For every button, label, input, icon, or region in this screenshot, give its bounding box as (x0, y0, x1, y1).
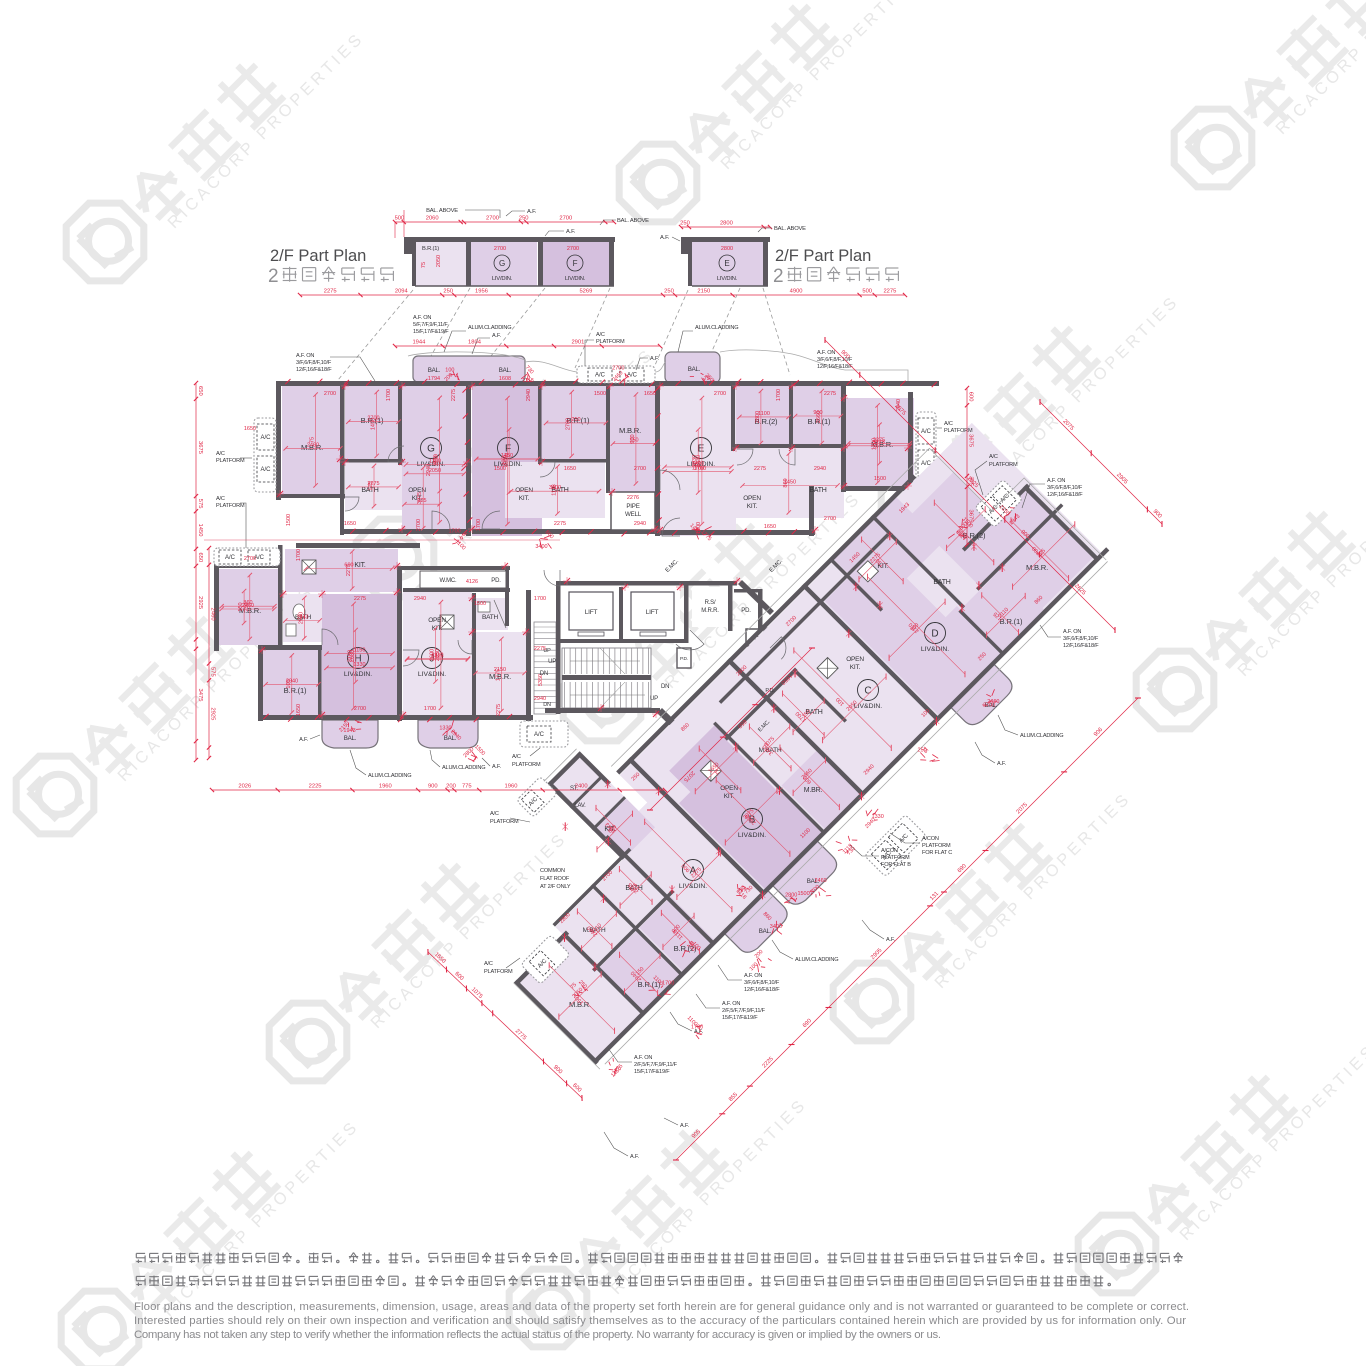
svg-text:1960: 1960 (505, 784, 518, 790)
svg-text:75: 75 (421, 262, 427, 268)
svg-text:A/C: A/C (490, 811, 499, 817)
svg-text:PLATFORM: PLATFORM (512, 762, 541, 768)
svg-text:2700: 2700 (354, 706, 366, 712)
svg-text:BATH: BATH (482, 614, 499, 621)
svg-text:COMMON: COMMON (540, 868, 565, 874)
svg-text:DN: DN (661, 684, 669, 690)
svg-text:1650: 1650 (764, 524, 776, 530)
svg-text:2700: 2700 (612, 366, 624, 372)
svg-text:PLATFORM: PLATFORM (944, 428, 973, 434)
svg-text:1650: 1650 (564, 466, 576, 472)
svg-text:A/C: A/C (595, 373, 606, 379)
svg-text:375: 375 (874, 439, 880, 448)
svg-text:2275: 2275 (496, 704, 502, 716)
svg-text:PLATFORM: PLATFORM (922, 843, 951, 849)
svg-text:1118: 1118 (522, 378, 533, 384)
svg-text:2925: 2925 (210, 707, 216, 720)
svg-text:1960: 1960 (379, 784, 392, 790)
svg-text:2050: 2050 (436, 255, 442, 267)
svg-text:125: 125 (368, 481, 374, 490)
svg-text:2940: 2940 (896, 399, 902, 411)
svg-text:3/F,6/F,8/F,10/F: 3/F,6/F,8/F,10/F (1047, 485, 1083, 491)
svg-text:E: E (698, 444, 705, 455)
svg-text:2275: 2275 (883, 289, 896, 295)
svg-text:100: 100 (445, 367, 454, 373)
svg-text:A.F. ON: A.F. ON (296, 353, 314, 359)
svg-text:2: 2 (268, 266, 279, 287)
svg-text:1650: 1650 (296, 704, 302, 716)
svg-text:2225: 2225 (309, 784, 322, 790)
svg-text:Interested parties should rely: Interested parties should rely on their … (134, 1315, 1186, 1327)
svg-text:5269: 5269 (579, 289, 592, 295)
svg-text:2026: 2026 (238, 784, 251, 790)
svg-text:900: 900 (428, 784, 438, 790)
svg-text:1650: 1650 (244, 426, 256, 432)
svg-text:1700: 1700 (694, 466, 706, 472)
svg-text:A.F.: A.F. (492, 333, 501, 339)
svg-text:500: 500 (395, 216, 405, 222)
svg-text:OPEN: OPEN (428, 617, 446, 624)
svg-text:A.F. ON: A.F. ON (413, 315, 431, 321)
svg-text:1943: 1943 (343, 728, 355, 734)
svg-text:15/F,17/F&19/F: 15/F,17/F&19/F (413, 329, 449, 335)
svg-text:BAL.: BAL. (499, 367, 512, 374)
svg-text:2660: 2660 (816, 411, 822, 423)
svg-text:A/C: A/C (512, 754, 521, 760)
svg-text:BAL.: BAL. (688, 366, 701, 373)
svg-text:A.F. ON: A.F. ON (744, 973, 762, 979)
svg-text:A.F.: A.F. (630, 1154, 639, 1160)
svg-text:A/C: A/C (225, 555, 236, 561)
svg-text:P.D.: P.D. (680, 656, 688, 662)
svg-text:250: 250 (680, 221, 690, 227)
svg-text:LIV&DIN.: LIV&DIN. (738, 832, 766, 839)
svg-text:150: 150 (238, 602, 244, 611)
svg-text:4126: 4126 (466, 579, 478, 585)
svg-text:2700: 2700 (566, 418, 572, 430)
svg-text:12/F,16/F&18/F: 12/F,16/F&18/F (817, 364, 853, 370)
svg-text:2/F Part Plan: 2/F Part Plan (270, 247, 366, 265)
svg-text:2800: 2800 (785, 893, 797, 899)
svg-text:A/C: A/C (260, 435, 271, 441)
svg-text:A/C: A/C (484, 961, 493, 967)
svg-text:2700: 2700 (416, 519, 422, 531)
svg-text:650: 650 (197, 553, 203, 563)
svg-text:FLAT ROOF: FLAT ROOF (540, 876, 570, 882)
svg-text:ALUM.CLADDING: ALUM.CLADDING (695, 325, 738, 331)
svg-text:A/CON: A/CON (922, 836, 939, 842)
svg-text:1700: 1700 (424, 706, 436, 712)
svg-text:1700: 1700 (476, 519, 482, 531)
svg-text:A.F. ON: A.F. ON (817, 350, 835, 356)
svg-text:BAL. ABOVE: BAL. ABOVE (617, 218, 649, 224)
svg-text:M.R.R.: M.R.R. (701, 608, 719, 614)
svg-text:PLATFORM: PLATFORM (484, 969, 513, 975)
svg-text:15/F,17/F&19/F: 15/F,17/F&19/F (634, 1069, 670, 1075)
svg-text:A/C: A/C (216, 451, 225, 457)
svg-text:1794: 1794 (428, 376, 440, 382)
svg-text:PLATFORM: PLATFORM (881, 855, 910, 861)
svg-text:3/F,6/F,8/F,10/F: 3/F,6/F,8/F,10/F (296, 360, 332, 366)
svg-text:A.F.: A.F. (527, 209, 537, 215)
svg-text:A/C: A/C (216, 496, 225, 502)
svg-text:D: D (931, 629, 938, 640)
svg-text:100: 100 (286, 679, 292, 688)
svg-text:250: 250 (443, 289, 453, 295)
svg-text:2901: 2901 (571, 340, 584, 346)
svg-text:250: 250 (571, 417, 580, 423)
svg-text:PLATFORM: PLATFORM (490, 819, 519, 825)
svg-text:75: 75 (310, 437, 316, 443)
svg-text:M.B.R.: M.B.R. (1026, 563, 1048, 572)
svg-text:12/F,16/F&18/F: 12/F,16/F&18/F (744, 987, 780, 993)
svg-text:A.F.: A.F. (660, 235, 670, 241)
svg-text:2940: 2940 (298, 612, 304, 624)
svg-text:2940: 2940 (814, 466, 826, 472)
svg-text:2700: 2700 (324, 391, 336, 397)
svg-text:A.F.: A.F. (566, 229, 576, 235)
svg-text:3/F,6/F,8/F,10/F: 3/F,6/F,8/F,10/F (744, 980, 780, 986)
svg-text:A.F. ON: A.F. ON (634, 1055, 652, 1061)
svg-text:ALUM.CLADDING: ALUM.CLADDING (468, 325, 511, 331)
svg-text:2400: 2400 (575, 784, 588, 790)
svg-text:PLATFORM: PLATFORM (989, 462, 1018, 468)
svg-text:BAL.: BAL. (344, 735, 357, 742)
svg-text:2/F,5/F,7/F,9/F,11/F: 2/F,5/F,7/F,9/F,11/F (634, 1062, 678, 1068)
svg-text:A.F.: A.F. (997, 761, 1006, 767)
svg-text:G: G (499, 259, 505, 268)
svg-text:250: 250 (519, 216, 529, 222)
svg-text:LIV&DIN.: LIV&DIN. (418, 671, 446, 678)
svg-text:1804: 1804 (468, 340, 482, 346)
svg-text:600: 600 (968, 392, 974, 402)
svg-text:W.MC.: W.MC. (440, 578, 458, 584)
svg-text:M.B.R.: M.B.R. (619, 426, 641, 435)
svg-text:UP: UP (650, 696, 658, 702)
svg-text:1700: 1700 (386, 389, 392, 401)
svg-text:E: E (724, 259, 729, 268)
svg-text:2700: 2700 (983, 702, 995, 708)
svg-text:LIV&DIN.: LIV&DIN. (679, 883, 707, 890)
svg-text:2/F,5/F,7/F,9/F,11/F: 2/F,5/F,7/F,9/F,11/F (722, 1008, 766, 1014)
svg-text:A/CON: A/CON (881, 848, 898, 854)
svg-text:1700: 1700 (534, 596, 546, 602)
svg-text:1608: 1608 (499, 376, 511, 382)
svg-text:A/C: A/C (260, 467, 271, 473)
svg-text:1500: 1500 (594, 391, 606, 397)
svg-text:1500: 1500 (474, 601, 486, 607)
svg-text:PD.: PD. (491, 578, 501, 584)
svg-text:A.F. ON: A.F. ON (1063, 629, 1081, 635)
svg-text:1500: 1500 (494, 466, 506, 472)
svg-text:BAL.: BAL. (428, 367, 441, 374)
svg-text:1118: 1118 (552, 484, 558, 495)
svg-text:3475: 3475 (197, 689, 203, 702)
svg-text:2276: 2276 (627, 495, 639, 501)
svg-text:12/F,16/F&18/F: 12/F,16/F&18/F (1047, 492, 1083, 498)
svg-text:LIV&DIN.: LIV&DIN. (921, 646, 949, 653)
svg-text:650: 650 (197, 386, 203, 396)
svg-text:ALUM.CLADDING: ALUM.CLADDING (1020, 733, 1063, 739)
svg-text:A.F.: A.F. (492, 764, 501, 770)
svg-text:2940: 2940 (414, 596, 426, 602)
svg-text:BAL. ABOVE: BAL. ABOVE (426, 208, 458, 214)
svg-text:500: 500 (862, 289, 872, 295)
svg-text:2150: 2150 (697, 289, 710, 295)
svg-text:A.F.: A.F. (299, 737, 308, 743)
svg-text:3/F,6/F,8/F,10/F: 3/F,6/F,8/F,10/F (1063, 636, 1099, 642)
svg-text:G: G (427, 444, 435, 455)
svg-text:1700: 1700 (448, 528, 460, 534)
svg-text:2/F Part Plan: 2/F Part Plan (775, 247, 871, 265)
svg-text:2460: 2460 (210, 608, 216, 621)
svg-text:2600: 2600 (430, 649, 436, 661)
svg-text:ALUM.CLADDING: ALUM.CLADDING (795, 957, 838, 963)
svg-text:3675: 3675 (968, 434, 974, 447)
svg-text:2940: 2940 (634, 521, 646, 527)
svg-text:PD.: PD. (741, 608, 751, 614)
svg-text:2460: 2460 (815, 878, 827, 884)
svg-text:3075: 3075 (417, 492, 423, 504)
svg-text:1500: 1500 (874, 476, 886, 482)
svg-text:OPEN: OPEN (743, 495, 761, 502)
svg-text:ALUM.CLADDING: ALUM.CLADDING (368, 773, 411, 779)
svg-text:LIFT: LIFT (646, 609, 659, 616)
svg-text:2275: 2275 (534, 646, 546, 652)
svg-text:2275: 2275 (346, 564, 352, 576)
svg-text:200: 200 (446, 784, 456, 790)
svg-text:A/C: A/C (627, 373, 638, 379)
svg-text:LIFT: LIFT (585, 609, 598, 616)
svg-text:250: 250 (918, 748, 927, 754)
svg-text:3400: 3400 (535, 544, 547, 550)
svg-text:KIT.: KIT. (747, 503, 758, 510)
svg-text:WELL: WELL (625, 511, 642, 518)
svg-text:12/F,16/F&18/F: 12/F,16/F&18/F (296, 367, 332, 373)
svg-text:DN: DN (540, 671, 548, 677)
svg-text:KIT.: KIT. (354, 562, 366, 569)
svg-text:12/F,16/F&18/F: 12/F,16/F&18/F (1063, 643, 1099, 649)
svg-text:1775: 1775 (495, 669, 501, 681)
svg-text:2940: 2940 (426, 464, 432, 476)
svg-text:2700: 2700 (559, 216, 572, 222)
svg-text:A.F.: A.F. (680, 1123, 689, 1129)
svg-text:PLATFORM: PLATFORM (216, 458, 245, 464)
svg-text:575: 575 (197, 499, 203, 509)
svg-text:FOR FLAT B: FOR FLAT B (881, 862, 911, 868)
svg-text:BAL. ABOVE: BAL. ABOVE (774, 226, 806, 232)
svg-text:1330: 1330 (439, 725, 451, 731)
svg-text:3675: 3675 (197, 441, 203, 454)
svg-text:250: 250 (664, 289, 674, 295)
svg-text:775: 775 (462, 784, 472, 790)
svg-text:2275: 2275 (451, 389, 457, 401)
svg-text:2700: 2700 (714, 391, 726, 397)
svg-text:A.F. ON: A.F. ON (1047, 478, 1065, 484)
svg-text:1500: 1500 (286, 514, 292, 526)
svg-text:2700: 2700 (494, 246, 506, 252)
svg-text:15/F,17/F&19/F: 15/F,17/F&19/F (722, 1015, 758, 1021)
svg-text:2275: 2275 (354, 596, 366, 602)
svg-text:2800: 2800 (755, 411, 761, 423)
svg-text:3400: 3400 (770, 924, 782, 930)
svg-text:LIV/DIN.: LIV/DIN. (492, 276, 513, 282)
svg-text:2680: 2680 (350, 650, 356, 662)
svg-text:2700: 2700 (824, 516, 836, 522)
svg-text:2800: 2800 (721, 246, 733, 252)
svg-text:OPEN: OPEN (515, 487, 533, 494)
svg-text:Floor plans and the descriptio: Floor plans and the description, measure… (134, 1301, 1189, 1313)
svg-text:2060: 2060 (426, 216, 439, 222)
svg-text:A/C: A/C (596, 332, 605, 338)
svg-text:1944: 1944 (412, 340, 426, 346)
svg-text:2700: 2700 (244, 556, 256, 562)
svg-text:2275: 2275 (324, 289, 337, 295)
svg-text:A/C: A/C (534, 732, 545, 738)
svg-text:LIV/DIN.: LIV/DIN. (565, 276, 586, 282)
svg-text:M.BR.: M.BR. (804, 787, 823, 794)
svg-text:1650: 1650 (344, 521, 356, 527)
svg-text:Company has not taken any step: Company has not taken any step to verify… (134, 1329, 941, 1341)
svg-text:B.R.(1): B.R.(1) (422, 246, 439, 252)
svg-text:1700: 1700 (296, 549, 302, 561)
svg-text:A/C: A/C (921, 429, 932, 435)
svg-text:FOR FLAT C: FOR FLAT C (922, 850, 952, 856)
svg-text:1700: 1700 (776, 389, 782, 401)
svg-text:575: 575 (210, 667, 216, 677)
svg-text:F: F (573, 259, 578, 268)
svg-text:A/C: A/C (989, 454, 998, 460)
svg-text:2925: 2925 (197, 596, 203, 609)
svg-text:OPEN: OPEN (720, 785, 738, 792)
svg-text:2094: 2094 (395, 289, 409, 295)
svg-text:2800: 2800 (720, 221, 733, 227)
svg-text:2: 2 (773, 266, 784, 287)
svg-text:900: 900 (434, 455, 440, 464)
svg-text:2275: 2275 (824, 391, 836, 397)
svg-text:DN: DN (543, 702, 551, 708)
svg-text:5/F,7/F,9/F,11/F: 5/F,7/F,9/F,11/F (413, 322, 448, 328)
svg-text:A.F. ON: A.F. ON (722, 1001, 740, 1007)
svg-text:LIV&DIN.: LIV&DIN. (344, 671, 372, 678)
svg-text:R.S/: R.S/ (705, 600, 716, 606)
svg-text:2700: 2700 (486, 216, 499, 222)
svg-text:2940: 2940 (526, 389, 532, 401)
svg-text:AT 2/F ONLY: AT 2/F ONLY (540, 884, 571, 890)
svg-text:2940: 2940 (534, 696, 546, 702)
svg-text:UP: UP (548, 659, 556, 665)
svg-text:2275: 2275 (754, 466, 766, 472)
svg-text:A/C: A/C (944, 421, 953, 427)
svg-text:LIV/DIN.: LIV/DIN. (717, 276, 738, 282)
svg-text:PLATFORM: PLATFORM (216, 503, 245, 509)
svg-text:KIT.: KIT. (519, 495, 530, 502)
svg-text:2275: 2275 (554, 521, 566, 527)
svg-text:BATH: BATH (809, 487, 826, 494)
svg-text:2700: 2700 (567, 246, 579, 252)
svg-text:2700: 2700 (634, 466, 646, 472)
svg-text:1450: 1450 (197, 524, 203, 537)
svg-text:1956: 1956 (475, 289, 488, 295)
svg-text:1450: 1450 (371, 418, 377, 430)
svg-text:OPEN: OPEN (846, 656, 864, 663)
svg-text:KIT.: KIT. (850, 664, 861, 671)
svg-text:900: 900 (630, 434, 636, 443)
svg-text:ALUM.CLADDING: ALUM.CLADDING (442, 765, 485, 771)
svg-text:A.F.: A.F. (650, 356, 659, 362)
svg-text:LAV.: LAV. (574, 803, 586, 809)
svg-text:PIPE: PIPE (626, 503, 639, 510)
svg-text:860: 860 (783, 478, 789, 487)
svg-text:4900: 4900 (790, 289, 803, 295)
svg-text:BATH: BATH (933, 579, 950, 586)
